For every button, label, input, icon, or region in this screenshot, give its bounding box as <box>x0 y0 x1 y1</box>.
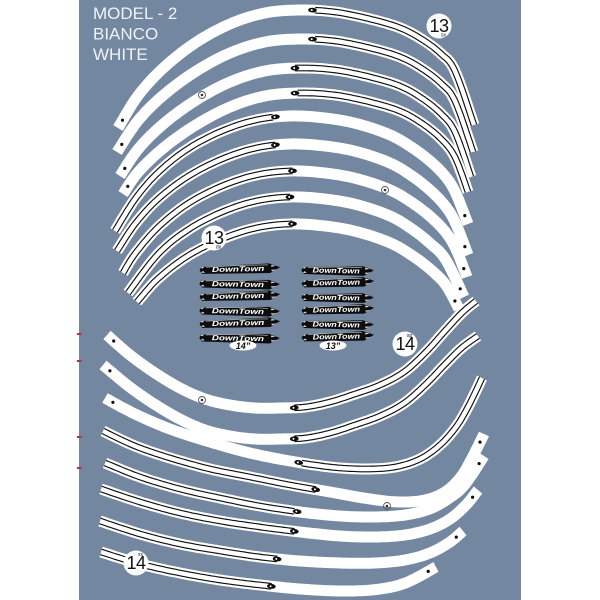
svg-text:13”: 13” <box>326 341 341 351</box>
svg-text:13: 13 <box>429 16 449 36</box>
svg-text:DownTown: DownTown <box>313 278 361 288</box>
svg-text:DownTown: DownTown <box>313 305 361 315</box>
svg-text:xp: xp <box>407 333 413 339</box>
svg-text:DownTown: DownTown <box>212 279 265 289</box>
svg-text:xs: xs <box>138 552 144 558</box>
svg-text:DownTown: DownTown <box>212 306 265 316</box>
svg-text:DownTown: DownTown <box>212 291 265 301</box>
svg-text:DownTown: DownTown <box>312 320 360 330</box>
svg-text:sx: sx <box>441 33 447 39</box>
svg-text:MODEL - 2: MODEL - 2 <box>93 4 177 23</box>
svg-text:14”: 14” <box>236 341 251 351</box>
svg-text:DownTown: DownTown <box>312 293 360 303</box>
svg-text:BIANCO: BIANCO <box>93 25 158 44</box>
svg-text:14: 14 <box>126 553 146 573</box>
svg-text:DownTown: DownTown <box>212 264 265 274</box>
svg-text:DownTown: DownTown <box>212 318 265 328</box>
svg-text:WHITE: WHITE <box>93 45 148 64</box>
svg-text:DownTown: DownTown <box>312 266 360 276</box>
svg-text:dx: dx <box>216 245 222 251</box>
